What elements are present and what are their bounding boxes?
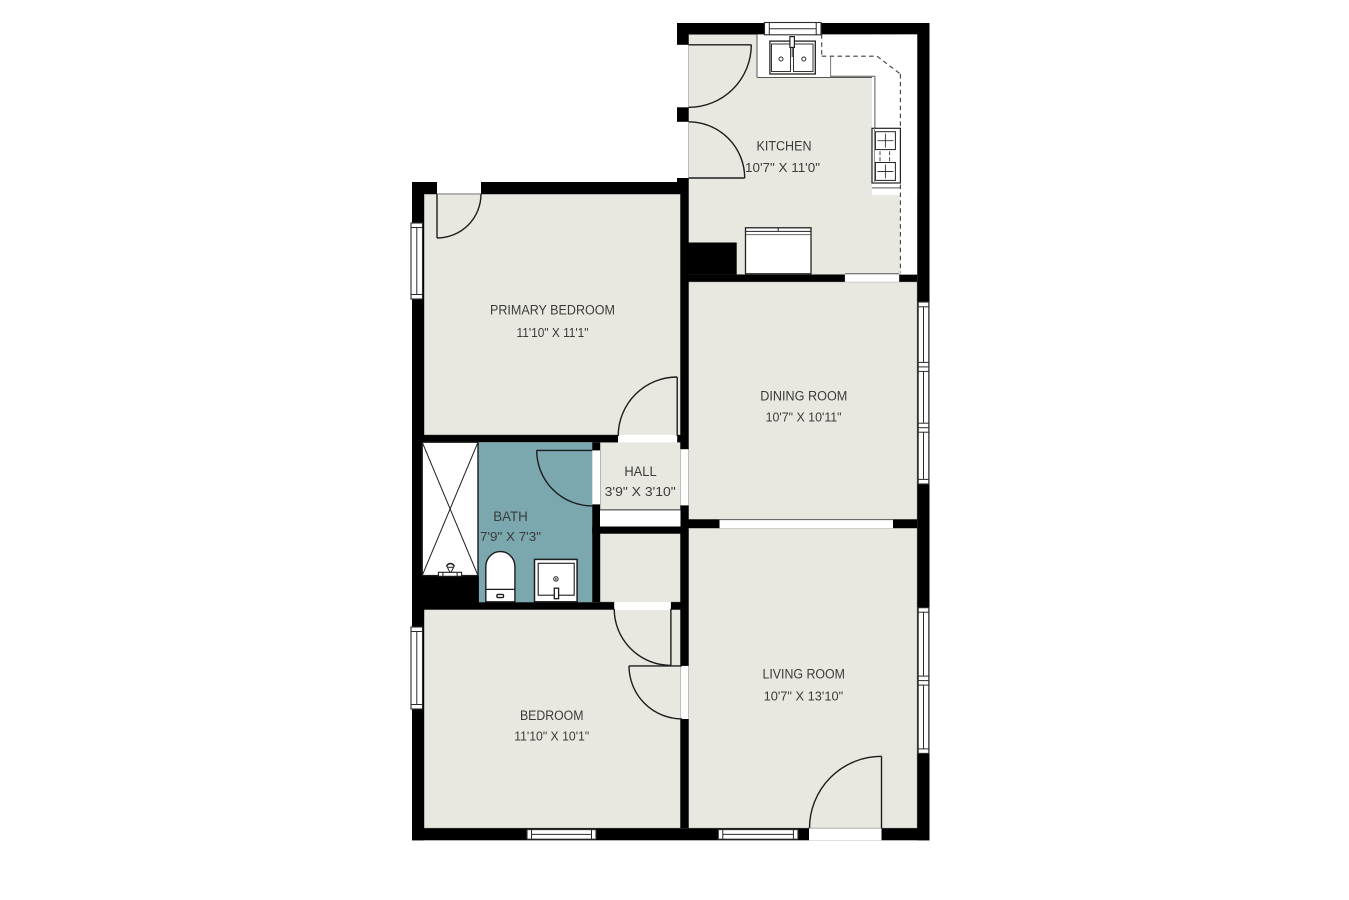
svg-text:HALL: HALL <box>624 464 657 479</box>
svg-text:BEDROOM: BEDROOM <box>520 708 584 723</box>
svg-text:BATH: BATH <box>493 509 528 524</box>
svg-text:11'10" X 10'1": 11'10" X 10'1" <box>514 728 589 743</box>
svg-text:10'7" X 11'0": 10'7" X 11'0" <box>745 160 820 175</box>
svg-text:3'9" X 3'10": 3'9" X 3'10" <box>605 484 676 499</box>
svg-text:7'9" X 7'3": 7'9" X 7'3" <box>480 529 541 544</box>
svg-text:PRIMARY BEDROOM: PRIMARY BEDROOM <box>490 303 615 318</box>
svg-text:DINING ROOM: DINING ROOM <box>760 389 847 404</box>
svg-text:10'7" X 10'11": 10'7" X 10'11" <box>766 410 842 425</box>
svg-text:LIVING ROOM: LIVING ROOM <box>762 667 845 682</box>
svg-text:11'10" X 11'1": 11'10" X 11'1" <box>517 325 589 340</box>
svg-text:KITCHEN: KITCHEN <box>757 139 812 154</box>
svg-text:10'7" X 13'10": 10'7" X 13'10" <box>764 689 844 704</box>
